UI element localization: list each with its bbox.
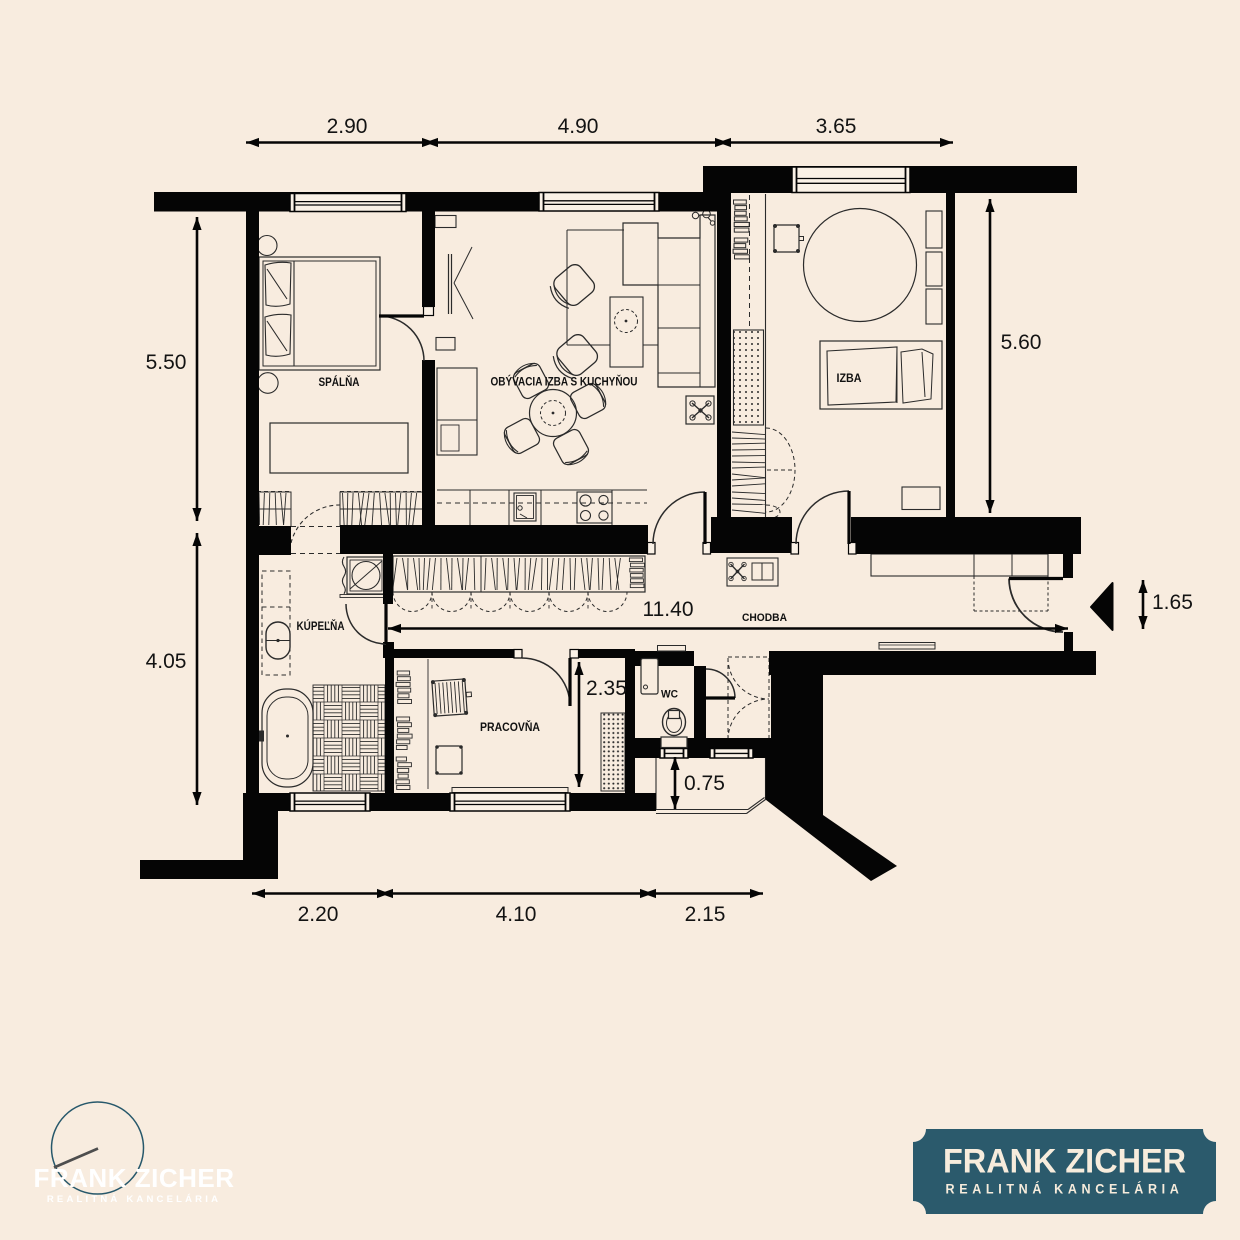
svg-text:5.60: 5.60: [1001, 331, 1042, 354]
svg-text:SPÁLŇA: SPÁLŇA: [319, 374, 360, 389]
svg-text:0.75: 0.75: [684, 772, 725, 795]
svg-text:3.65: 3.65: [816, 115, 857, 138]
svg-text:OBÝVACIA IZBA S KUCHYŇOU: OBÝVACIA IZBA S KUCHYŇOU: [491, 374, 638, 389]
svg-text:REALITNÁ KANCELÁRIA: REALITNÁ KANCELÁRIA: [47, 1194, 221, 1205]
svg-text:2.20: 2.20: [298, 903, 339, 926]
svg-text:PRACOVŇA: PRACOVŇA: [480, 719, 540, 734]
svg-text:WC: WC: [661, 689, 678, 701]
svg-text:FRANK ZICHER: FRANK ZICHER: [943, 1143, 1186, 1181]
svg-text:KÚPEĽŇA: KÚPEĽŇA: [297, 620, 345, 633]
svg-text:4.05: 4.05: [146, 650, 187, 673]
svg-text:FRANK ZICHER: FRANK ZICHER: [34, 1163, 235, 1193]
svg-text:2.35: 2.35: [586, 677, 627, 700]
svg-text:5.50: 5.50: [146, 351, 187, 374]
svg-text:11.40: 11.40: [643, 598, 694, 621]
svg-text:2.90: 2.90: [327, 115, 368, 138]
svg-text:REALITNÁ KANCELÁRIA: REALITNÁ KANCELÁRIA: [946, 1182, 1184, 1197]
svg-text:2.15: 2.15: [685, 903, 726, 926]
svg-text:IZBA: IZBA: [837, 371, 862, 385]
svg-text:4.90: 4.90: [558, 115, 599, 138]
svg-text:1.65: 1.65: [1152, 591, 1193, 614]
svg-text:4.10: 4.10: [496, 903, 537, 926]
svg-text:CHODBA: CHODBA: [742, 612, 787, 624]
